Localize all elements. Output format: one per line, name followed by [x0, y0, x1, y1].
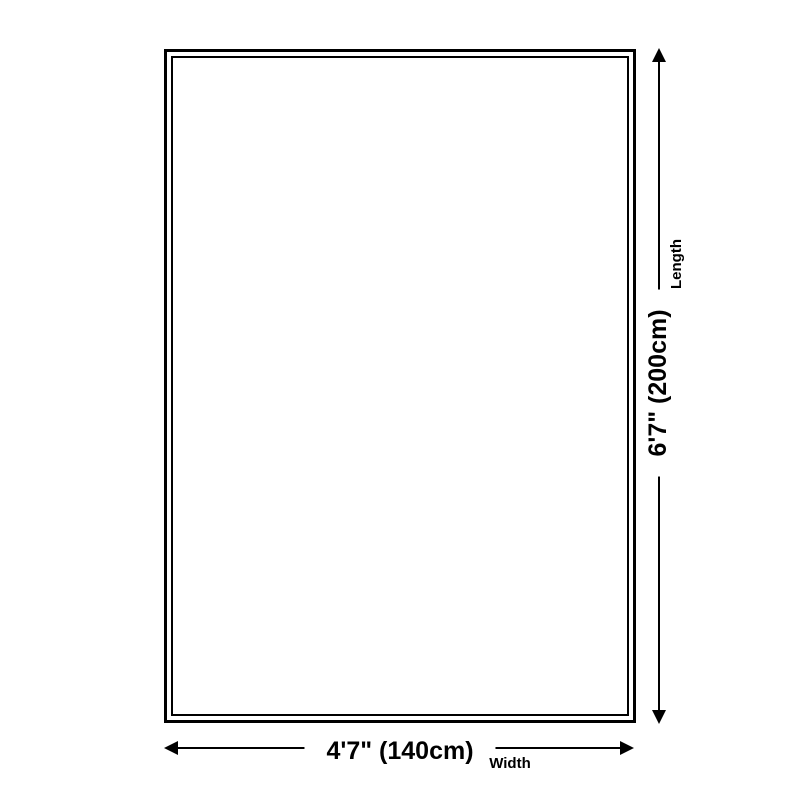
- product-outline: [164, 49, 636, 723]
- width-value: 4'7" (140cm): [304, 736, 495, 766]
- width-label: Width: [489, 755, 531, 773]
- length-value: 6'7" (200cm): [643, 289, 673, 476]
- arrow-right-icon: [620, 741, 634, 755]
- arrow-down-icon: [652, 710, 666, 724]
- product-inner-outline: [171, 56, 629, 716]
- arrow-left-icon: [164, 741, 178, 755]
- size-diagram: 6'7" (200cm) Length 4'7" (140cm) Width: [0, 0, 800, 800]
- length-label: Length: [668, 239, 686, 289]
- arrow-up-icon: [652, 48, 666, 62]
